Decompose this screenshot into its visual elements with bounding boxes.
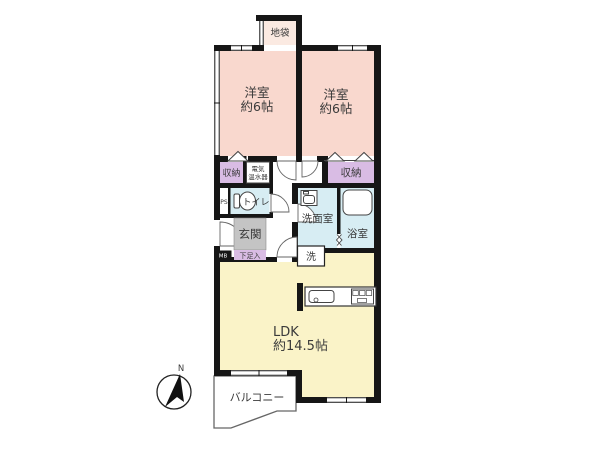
wall-segment <box>252 45 264 51</box>
toilet-tank <box>234 194 240 208</box>
sink-icon <box>301 191 317 206</box>
closet-left-label: 収納 <box>222 167 240 179</box>
window-bedroom-right-top <box>338 45 367 51</box>
wall-segment <box>374 45 381 403</box>
floorplan-canvas: N 洋室 約6帖 洋室 約6帖 地袋 収納 収納 電気 温水器 PS トイレ 玄… <box>0 0 600 450</box>
bedroom-left-size: 約6帖 <box>241 99 274 114</box>
door-arc-toilet <box>271 194 289 212</box>
bedroom-left-name: 洋室 <box>244 85 269 100</box>
wall-segment <box>214 370 231 376</box>
ldk-floor-lower <box>302 370 374 397</box>
stove-outline <box>352 289 374 304</box>
wall-segment <box>366 397 381 403</box>
sink-basin <box>304 196 315 204</box>
washroom-label: 洗面室 <box>302 212 334 225</box>
door-arc-ldk <box>277 237 297 257</box>
wall-segment <box>228 188 231 214</box>
kitchen-sink-icon <box>309 291 334 303</box>
meter-box-label: MB <box>219 254 228 260</box>
ldk-name: LDK <box>273 325 299 340</box>
ldk-size: 約14.5帖 <box>273 339 328 354</box>
sink-faucet <box>304 192 309 195</box>
bathroom-label: 浴室 <box>347 227 368 240</box>
floorplan-svg: N 洋室 約6帖 洋室 約6帖 地袋 収納 収納 電気 温水器 PS トイレ 玄… <box>0 0 600 450</box>
north-arrow-icon <box>165 374 184 407</box>
wall-segment <box>214 45 220 51</box>
wall-segment <box>214 156 228 162</box>
kitchen-counter <box>305 287 376 306</box>
wall-segment <box>297 283 303 311</box>
shoe-cabinet-label: 下足入 <box>240 252 261 260</box>
wall-segment <box>256 15 302 21</box>
wall-segment <box>325 248 374 253</box>
door-arc-bedroom-right <box>302 161 318 177</box>
wall-segment <box>296 15 302 162</box>
closet-right-label: 収納 <box>341 166 362 179</box>
floor-chest-label: 地袋 <box>270 27 290 39</box>
window-bedroom-left-side <box>214 51 220 155</box>
window-floor-chest-side <box>259 21 264 45</box>
wall-segment <box>296 397 327 403</box>
wall-segment <box>292 188 298 204</box>
water-heater-label-line2: 温水器 <box>248 172 268 181</box>
wall-segment <box>302 45 338 51</box>
window-bedroom-left-top <box>231 45 252 51</box>
wall-segment <box>292 183 374 188</box>
bedroom-right-name: 洋室 <box>323 87 348 102</box>
wall-segment <box>214 246 220 376</box>
wall-segment <box>270 156 274 194</box>
water-heater-label-line1: 電気 <box>252 164 266 173</box>
bathtub-icon <box>343 190 372 215</box>
bedroom-right-size: 約6帖 <box>320 101 353 116</box>
pipe-space-label: PS <box>220 199 228 206</box>
washer-space-label: 洗 <box>306 251 316 263</box>
compass: N <box>157 364 191 409</box>
door-arc-bedroom-left <box>277 161 296 180</box>
window-ldk-bottom <box>327 397 366 403</box>
toilet-label: トイレ <box>242 198 269 208</box>
wall-segment <box>214 214 273 218</box>
balcony-label: バルコニー <box>230 391 285 404</box>
wall-segment <box>337 188 341 234</box>
stove-icon <box>352 289 374 304</box>
window-ldk-balcony <box>231 370 287 376</box>
compass-north-label: N <box>178 364 184 374</box>
entrance-label: 玄関 <box>239 227 262 241</box>
ldk-floor-upper-right <box>325 253 374 262</box>
